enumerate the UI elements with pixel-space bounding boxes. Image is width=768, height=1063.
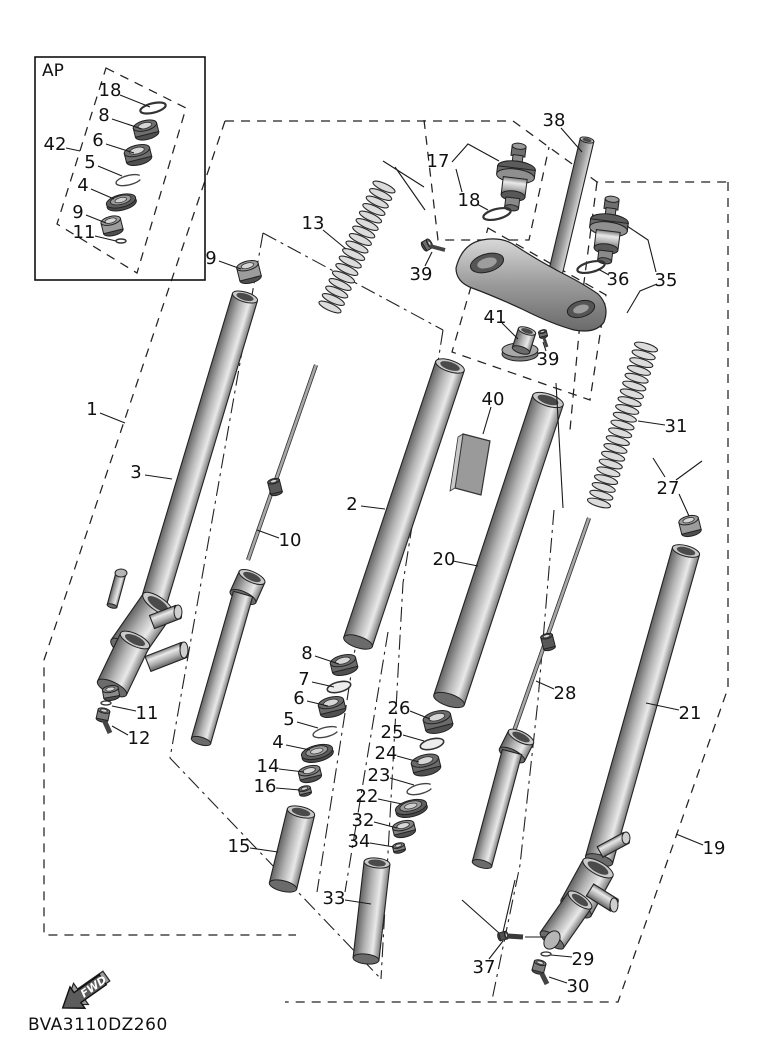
callout-7: 7 — [298, 669, 309, 690]
callout-38: 38 — [543, 110, 566, 131]
callout-leader-5 — [297, 722, 318, 728]
callout-leader-2 — [361, 506, 385, 509]
inner-tube-2 — [342, 356, 466, 652]
bush-6 — [317, 694, 347, 720]
fork-exploded-diagram: 1886549114291313101112240208765414161526… — [0, 0, 768, 1063]
callout-leader-31 — [638, 421, 665, 425]
callout-leader-25 — [403, 735, 424, 741]
assembly-line — [653, 458, 665, 477]
callout-21: 21 — [679, 703, 702, 724]
ap-label: AP — [42, 61, 64, 81]
figure-code: BVA3110DZ260 — [28, 1015, 168, 1035]
callout-11: 11 — [136, 703, 159, 724]
spring-31 — [586, 340, 658, 510]
assembly-line — [503, 880, 515, 932]
callout-25: 25 — [381, 722, 404, 743]
callout-leader-16 — [276, 788, 300, 790]
callout-32: 32 — [352, 810, 375, 831]
clip-23 — [407, 784, 431, 795]
callout-30: 30 — [567, 976, 590, 997]
o-ring-36 — [576, 259, 606, 276]
callout-42: 42 — [44, 134, 67, 155]
oil-seal-22 — [394, 797, 429, 821]
part-illustrations — [95, 100, 702, 984]
callout-leader-4 — [286, 745, 310, 750]
callout-leader-20 — [453, 561, 478, 566]
spacer-tube-33 — [353, 857, 391, 966]
bush-6-ap — [123, 142, 153, 168]
callout-29: 29 — [572, 949, 595, 970]
fwd-stamp: FWD — [55, 965, 115, 1018]
callout-leader-11 — [95, 236, 116, 241]
washer-11-ap — [116, 239, 126, 243]
callout-leader-19 — [676, 834, 703, 845]
callout-leader-30 — [549, 977, 567, 983]
callout-bracket — [452, 144, 499, 162]
callout-39: 39 — [410, 264, 433, 285]
dust-seal-18-ap — [139, 100, 166, 115]
callout-4: 4 — [77, 175, 88, 196]
bolt-30-shaft — [542, 974, 547, 984]
callout-41: 41 — [484, 307, 507, 328]
callout-11: 11 — [73, 222, 96, 243]
ring-32 — [391, 818, 416, 839]
callout-20: 20 — [433, 549, 456, 570]
assembly-line — [679, 494, 689, 516]
bush-26 — [422, 708, 454, 736]
callout-leader-12 — [112, 726, 128, 735]
stopper-34 — [392, 842, 406, 855]
o-ring-18 — [482, 206, 512, 223]
bolt-37-shaft — [507, 936, 523, 937]
callout-leader-5 — [98, 166, 122, 176]
callout-8: 8 — [98, 105, 109, 126]
callout-5: 5 — [84, 152, 95, 173]
callout-27: 27 — [657, 478, 680, 499]
callout-8: 8 — [301, 643, 312, 664]
collar-9-ap — [100, 214, 124, 238]
bolt-39b-head — [538, 329, 548, 339]
bush-8 — [329, 652, 359, 678]
callout-4: 4 — [272, 732, 283, 753]
callout-28: 28 — [554, 683, 577, 704]
assembly-line — [383, 161, 424, 187]
callout-1: 1 — [86, 399, 97, 420]
callout-leader-1 — [100, 413, 125, 423]
callout-leader-42 — [66, 148, 80, 151]
collar-27 — [678, 514, 702, 539]
clip-5 — [313, 727, 337, 738]
cartridge-10-body — [190, 591, 252, 747]
assembly-line — [395, 167, 425, 210]
washer-29 — [541, 952, 551, 956]
callout-6: 6 — [293, 688, 304, 709]
callout-leader-34 — [370, 843, 394, 847]
callout-40: 40 — [482, 389, 505, 410]
callout-leader-13 — [323, 230, 346, 249]
callout-35: 35 — [655, 270, 678, 291]
ring-14 — [297, 763, 322, 784]
bolt-39-shaft — [430, 246, 445, 250]
preload-adjuster-17 — [492, 141, 538, 213]
assembly-line — [676, 461, 702, 480]
callout-26: 26 — [388, 698, 411, 719]
seal-4-ap — [105, 191, 138, 213]
outer-tube-3 — [138, 289, 259, 617]
bolt-30-head — [531, 959, 546, 976]
boundary-line — [225, 121, 728, 182]
callout-leader-23 — [390, 778, 414, 785]
callout-leader-29 — [551, 955, 572, 957]
clip-5-ap — [116, 175, 140, 186]
callout-leader-22 — [378, 799, 402, 804]
bolt-12-head — [96, 707, 111, 723]
oil-seal-4 — [300, 742, 335, 766]
callout-6: 6 — [92, 130, 103, 151]
bolt-12-shaft — [105, 722, 110, 733]
fork-cap-35 — [585, 194, 631, 266]
callout-33: 33 — [323, 888, 346, 909]
callout-18: 18 — [99, 80, 122, 101]
callout-bracket — [627, 226, 656, 272]
callout-15: 15 — [228, 836, 251, 857]
callout-5: 5 — [283, 709, 294, 730]
bush-24 — [410, 752, 442, 779]
callout-leader-3 — [145, 475, 172, 479]
callout-31: 31 — [665, 416, 688, 437]
callout-19: 19 — [703, 838, 726, 859]
callout-leader-40 — [483, 407, 491, 434]
assembly-line — [462, 900, 499, 933]
spring-13 — [318, 179, 397, 315]
callout-24: 24 — [375, 743, 398, 764]
callout-leader-18 — [120, 95, 150, 107]
callout-16: 16 — [254, 776, 277, 797]
washer-11 — [101, 701, 111, 705]
parts-catalog-page: 1886549114291313101112240208765414161526… — [0, 0, 768, 1063]
callout-14: 14 — [257, 756, 280, 777]
callout-leader-15 — [250, 848, 278, 852]
assembly-line — [456, 169, 462, 192]
callout-leader-38 — [561, 128, 582, 152]
spacer-tube-15 — [268, 804, 316, 895]
callout-34: 34 — [348, 831, 371, 852]
callout-22: 22 — [356, 786, 379, 807]
callout-leader-10 — [257, 530, 279, 538]
callout-10: 10 — [279, 530, 302, 551]
collar-9 — [236, 259, 263, 286]
callout-2: 2 — [346, 494, 357, 515]
callout-17: 17 — [427, 151, 450, 172]
callout-9: 9 — [72, 202, 83, 223]
cartridge-28-body — [471, 749, 521, 870]
callout-39: 39 — [537, 349, 560, 370]
callout-9: 9 — [205, 248, 216, 269]
callout-36: 36 — [607, 269, 630, 290]
callout-13: 13 — [302, 213, 325, 234]
callout-3: 3 — [130, 462, 141, 483]
bush-8-ap — [132, 118, 160, 142]
callout-leader-4 — [91, 189, 114, 199]
stopper-16 — [298, 785, 312, 798]
callout-leader-11 — [112, 706, 136, 711]
washer-25 — [419, 736, 445, 752]
callout-12: 12 — [128, 728, 151, 749]
callout-37: 37 — [473, 957, 496, 978]
callout-bracket — [627, 284, 657, 313]
callout-23: 23 — [368, 765, 391, 786]
callout-18: 18 — [458, 190, 481, 211]
